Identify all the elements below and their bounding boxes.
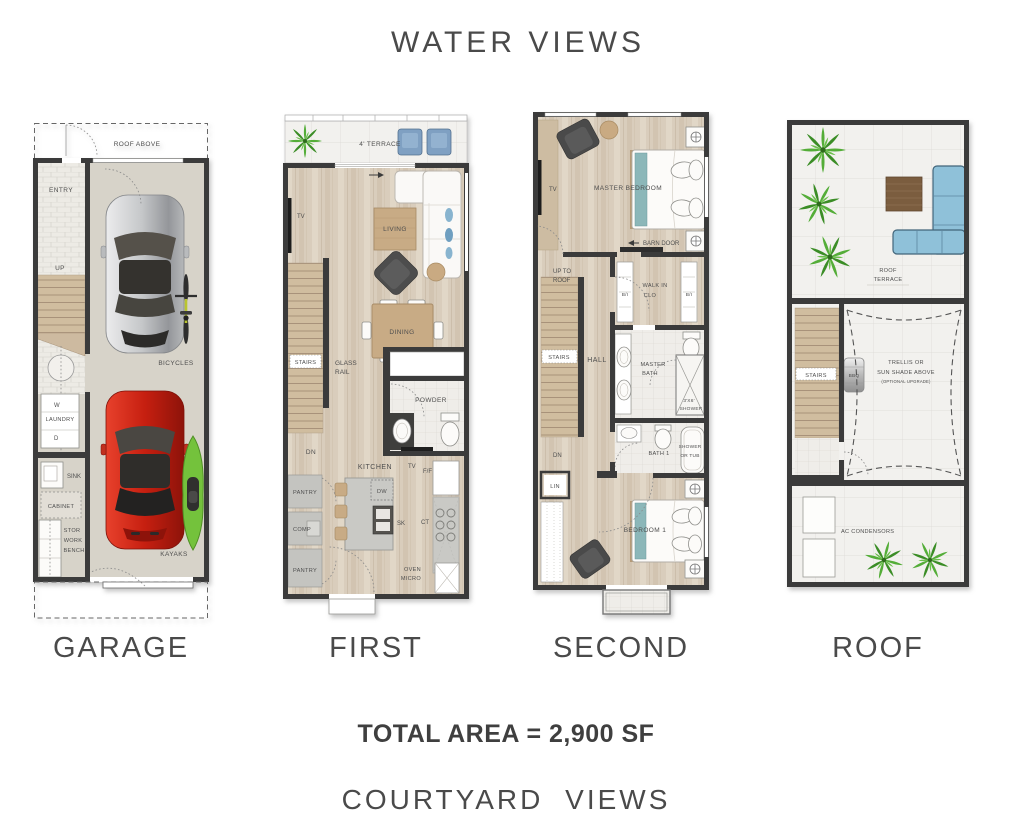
terrace-chair [427,129,451,155]
label-tv: TV [549,187,557,193]
label-sink: SINK [67,474,81,480]
master-bath [615,330,704,418]
label-roof: ROOF [553,278,571,284]
round-table [600,121,618,139]
side-table [427,263,445,281]
label-rail: RAIL [335,369,350,376]
label-roof-above: ROOF ABOVE [114,141,161,148]
label-ac: AC CONDENSORS [841,529,894,535]
coffee-table: LIVING [374,208,416,250]
floor-title-second: SECOND [533,632,709,665]
label-trellis2: SUN SHADE ABOVE [877,370,935,376]
label-trellis3: (OPTIONAL UPGRADE) [881,379,931,384]
label-bicycles: BICYCLES [158,360,194,367]
label-bath1: BATH 1 [649,451,670,457]
label-work: WORK [64,538,83,544]
label-oven: OVEN [404,567,421,573]
label-comp: COMP [293,527,311,533]
page-title: WATER VIEWS [0,26,1012,60]
kayak [183,436,204,550]
plan-roof: ROOF TERRACE STAIRS BBQ TRELLIS OR SUN S… [787,120,969,590]
plan-first: 4' TERRACE STAIRS LIVING DINING [283,113,469,616]
label-stor: STOR [64,528,81,534]
label-kitchen: KITCHEN [358,464,392,471]
powder-room: POWDER [383,347,464,456]
label-clo: CLO [644,293,657,299]
label-bench: BENCH [63,548,84,554]
bbq-grill: BBQ [844,358,864,392]
label-dining: DINING [389,329,414,336]
first-terrace: 4' TERRACE [285,115,467,163]
label-bbq: BBQ [849,373,860,379]
label-kayaks: KAYAKS [160,551,188,558]
roof-stairs: STAIRS [795,308,839,475]
label-powder: POWDER [415,397,447,404]
label-walk-in: WALK IN [643,283,668,289]
label-stairs: STAIRS [295,360,317,366]
roof-table [886,177,922,211]
label-washer: W [54,403,60,409]
first-stairs: STAIRS [288,258,329,433]
label-glass: GLASS [335,360,357,367]
label-cabinet: CABINET [48,504,75,510]
floorplan-sheet: { "header": { "title": "WATER VIEWS" }, … [0,0,1012,828]
floor-title-roof: ROOF [787,632,969,665]
label-trellis1: TRELLIS OR [888,360,924,366]
floor-title-first: FIRST [283,632,469,665]
label-up: UP [55,265,65,272]
label-shower-dim: 3'X6' [683,398,694,404]
label-bedroom1: BEDROOM 1 [624,527,667,534]
car-silver [101,195,189,353]
tv-wall [288,198,292,253]
plan-second: MASTER BEDROOM BARN DOOR STAIRS [533,112,709,617]
label-barn-door: BARN DOOR [643,241,680,247]
label-up-to: UP TO [553,269,571,275]
label-tv: TV [297,214,305,220]
label-shower: SHOWER [680,406,703,412]
label-hall: HALL [587,357,607,364]
label-laundry: LAUNDRY [46,417,75,423]
label-bi-right: B/I [686,292,692,298]
label-stairs: STAIRS [548,355,570,361]
terrace-chair [398,129,422,155]
label-ct: CT [421,520,429,526]
floor-title-garage: GARAGE [33,632,209,665]
label-ff: F/F [423,469,432,475]
car-red [101,391,189,549]
label-pantry2: PANTRY [293,568,317,574]
label-terrace: 4' TERRACE [359,141,401,148]
label-roof: ROOF [879,268,897,274]
balcony [603,590,670,614]
label-dn: DN [306,449,316,456]
label-dryer: D [54,436,59,442]
label-living: LIVING [383,226,407,233]
label-micro: MICRO [401,576,421,582]
label-pantry1: PANTRY [293,490,317,496]
label-dn: DN [553,453,562,459]
label-stairs: STAIRS [805,373,827,379]
label-dw: DW [377,489,387,495]
label-tv2: TV [408,464,416,470]
label-sk: SK [397,521,405,527]
label-bi-left: B/I [622,292,628,298]
plant [288,124,322,158]
label-master-bedroom: MASTER BEDROOM [594,185,662,192]
second-stairs: STAIRS [541,277,584,437]
label-entry: ENTRY [49,187,73,194]
label-terrace: TERRACE [874,277,903,283]
label-shower-or: SHOWER [679,444,702,450]
total-area: TOTAL AREA = 2,900 SF [0,720,1012,749]
label-or-tub: OR TUB [680,453,699,459]
label-lin: LIN [550,484,560,490]
label-bath: BATH [642,371,658,377]
label-master: MASTER [640,362,665,368]
plan-garage: ROOF ABOVE [33,122,209,620]
garage-roof-above: ROOF ABOVE [35,124,208,164]
courtyard-title: COURTYARD VIEWS [0,784,1012,816]
